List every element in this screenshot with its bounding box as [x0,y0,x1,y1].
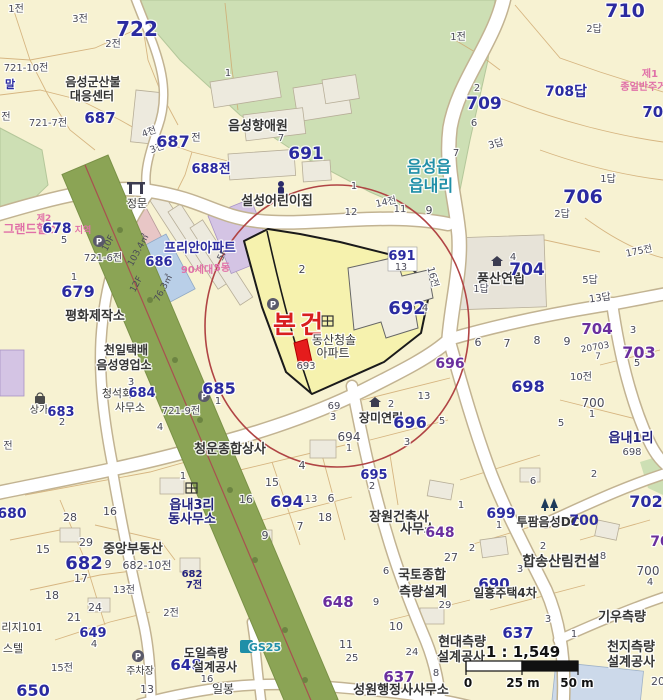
lbl-c3: 1 [180,471,186,482]
lbl-b64: 사무소 [115,401,145,414]
lbl-c10: 9 [105,558,112,571]
lbl-a41: 설성어린이집 [241,193,313,209]
lbl-b75: 13 [418,391,431,402]
lbl-c6: 16 [103,505,117,518]
svg-text:P: P [135,653,141,663]
lbl-b67: 2 [59,417,65,428]
lbl-b77: 694 [338,430,361,444]
lbl-a17: 1 [225,68,231,79]
lbl-a7: 음성군산불 [65,74,120,89]
lbl-a20: 691 [288,144,324,164]
lbl-c32: 13 [140,683,154,696]
lbl-b78: 1 [346,443,352,454]
lbl-c69: 일흥주택4차 [473,585,537,600]
lbl-c39: 13 [305,494,318,505]
lbl-b6: 5 [61,235,67,246]
lbl-a24: 708답 [545,83,587,100]
lbl-c26: 650 [16,681,49,700]
lbl-c42: 7 [297,520,304,533]
lbl-a39: 11 [394,204,407,215]
lbl-b57: 721-9전 [162,405,200,417]
child-icon [278,181,284,194]
lbl-c36: 15 [265,476,279,489]
lbl-a40: 9 [426,204,433,217]
lbl-c62: 국토종합 [398,567,446,583]
lbl-c78: 24 [406,647,419,658]
lbl-c81: 25 [346,653,359,664]
lbl-c49: 1 [458,500,464,511]
lbl-b76: 5 [439,416,445,427]
lbl-b63: 684 [128,386,155,401]
lbl-c33: 일봉 [212,682,234,696]
lbl-c40: 6 [328,492,335,505]
lbl-b16: 679 [61,282,94,301]
scale-tick-50m: 50 m [560,676,593,690]
lbl-c21: 리지101 [1,621,42,634]
cadastral-map-canvas[interactable]: P P P P 1전 3전 722 2전 721-10전 [0,0,663,700]
lbl-c41: 18 [318,511,332,524]
lbl-c9: 682 [65,553,103,574]
lbl-b65: 상가 [30,404,48,416]
lbl-c38: 694 [270,492,303,511]
lbl-b43: 704 [581,320,612,338]
lbl-c88: 천지측량 [607,639,655,655]
lbl-a34: 1답 [600,173,616,185]
lbl-a11: 전 [1,111,10,123]
lbl-b8: 90세대 [181,263,213,276]
lbl-c54: 2 [540,541,546,552]
lbl-b25: 동산청솔 [312,333,356,347]
lbl-c37: 16 [239,493,253,506]
lbl-c91: 20 [651,675,663,688]
lbl-c7: 15 [36,543,50,556]
lbl-c4: 680 [0,506,27,522]
lbl-c56: 700 [569,513,598,529]
lbl-b69: 청운종합상사 [194,441,266,457]
lbl-a28: 709 [466,94,502,114]
lbl-c8: 29 [79,536,93,549]
lbl-c77: 8 [433,668,439,679]
scale-tick-0: 0 [464,676,472,690]
lbl-c53: 2 [469,543,475,554]
lbl-b32: 704 [509,260,545,280]
lbl-a43: 12 [345,207,358,218]
lbl-c19: 7전 [186,578,202,591]
lbl-b81: 2 [369,481,375,492]
lbl-c75: 4 [647,577,653,588]
lbl-b71: 3 [330,412,336,423]
lbl-c60: 8 [600,551,606,562]
lbl-b47: 3 [630,325,636,336]
lbl-c25: 15전 [51,662,73,674]
lbl-c57: 702 [629,492,662,511]
lbl-b9: 5동 [214,262,230,274]
lbl-b60: 음성영업소 [96,357,151,372]
lbl-b41: 8 [534,334,541,347]
lbl-b79: 3 [404,437,410,448]
lbl-b54: 698 [622,447,641,458]
lbl-a16: 688전 [191,161,230,177]
lbl-a18: 음성향애원 [228,118,288,134]
lbl-c89: 설계공사 [607,654,655,670]
lbl-b19: 721-6전 [84,252,122,264]
lbl-a8: 대응센터 [70,88,114,103]
lbl-c15: 13전 [113,584,135,596]
lbl-b33: 1답 [473,283,489,295]
lbl-c73: 기우측량 [598,609,646,625]
lbl-b51: 1 [589,409,595,420]
lbl-c12: 682-10전 [122,559,171,572]
lbl-a33: 706 [563,186,603,208]
lbl-b24: 692 [388,298,426,319]
lbl-c11: 중앙부동산 [103,541,163,557]
lbl-b38: 696 [435,356,464,372]
lbl-b29: 4 [422,303,428,314]
lbl-a42: 1 [351,181,357,192]
lbl-a26: 종일반주거지 [620,80,663,93]
lbl-b59: 천일택배 [104,342,148,357]
lbl-a14: 687 [156,132,189,151]
lbl-a3: 722 [116,17,158,41]
scale-tick-25m: 25 m [506,676,539,690]
lbl-c14: 18 [45,589,59,602]
lbl-c24: 4 [91,639,97,650]
lbl-b53: 읍내1리 [609,430,654,446]
lbl-c30: 설계공사 [193,659,237,674]
lbl-c27: 주차장 [126,665,154,677]
lbl-b49: 10전 [570,371,592,383]
lbl-c80: 11 [339,638,353,651]
lbl-c18: 682 [182,569,203,580]
lbl-a35: 2답 [554,208,570,220]
lbl-b50: 700 [582,396,605,410]
lbl-a23: 2답 [586,23,602,35]
lbl-b22: 2 [299,263,306,276]
lbl-c61: 3 [517,564,523,575]
lbl-c64: 9 [373,597,379,608]
lbl-b42: 9 [564,335,571,348]
lbl-c52: 27 [444,551,458,564]
lbl-c59: 합송산림컨설 [522,553,599,570]
lbl-c1: 읍내3리 [170,497,215,513]
lbl-b40: 7 [504,337,511,350]
lbl-a19: 7 [278,133,284,144]
lbl-c70: 637 [502,624,533,642]
lbl-c82: 현대측량 [438,634,486,650]
lbl-a31: 7 [453,148,459,159]
lbl-b5: 678 [42,221,71,237]
lbl-c63: 측량설계 [399,584,447,600]
lbl-b73: 2 [388,399,394,410]
lbl-c22: 스텔 [3,642,23,655]
lbl-c71: 3 [545,614,551,625]
lbl-c58: 70 [650,534,663,550]
lbl-c2: 동사무소 [168,511,216,527]
lbl-a29: 2 [474,83,480,94]
lbl-c79: 10 [389,620,403,633]
lbl-c35: 4 [299,459,306,472]
lbl-b58: 4 [157,422,163,433]
lbl-c17: 21 [67,611,81,624]
lbl-a10: 721-7전 [29,117,67,129]
lbl-b37: 698 [511,377,544,396]
lbl-b26: 아파트 [316,346,349,360]
lbl-c48: 1 [496,520,502,531]
lbl-b21: 13 [395,262,407,273]
lbl-c72: 1 [571,629,577,640]
lbl-b1: 정문 [127,197,147,210]
lbl-b17: 1 [71,272,77,283]
lbl-c90: 성원행정사사무소 [353,682,449,698]
lbl-b18: 평화제작소 [65,308,125,324]
lbl-a30: 6 [471,118,477,129]
lbl-a2: 3전 [72,13,88,25]
lbl-c13: 17 [74,572,88,585]
lbl-c67: 648 [322,593,353,611]
lbl-c20: 2전 [163,607,179,619]
lbl-c66: 29 [439,600,452,611]
lbl-c5: 28 [63,511,77,524]
lbl-c34: GS25 [249,641,281,654]
lbl-b52: 5 [558,418,564,429]
lbl-b45: 7 [595,352,601,362]
lbl-c50: 2 [591,469,597,480]
map-viewport[interactable]: P P P P 1전 3전 722 2전 721-10전 [0,0,663,700]
lbl-a4: 2전 [105,38,121,50]
lbl-c46: 648 [425,525,454,541]
lbl-b74: 696 [393,413,426,432]
lbl-b34: 5답 [582,274,598,286]
lbl-a27: 707 [642,103,663,121]
scale-ratio-label: 1 : 1,549 [486,643,560,661]
lbl-a5: 721-10전 [4,62,49,74]
lbl-b39: 6 [475,336,482,349]
lbl-a21: 1전 [450,31,466,43]
lbl-b70: 69 [328,401,341,412]
svg-text:P: P [270,301,276,311]
lbl-b4: 지역 [75,224,92,236]
lbl-a22: 710 [605,0,645,22]
lbl-a1: 1전 [8,3,24,15]
lbl-c51: 6 [530,476,536,487]
lbl-c16: 24 [88,601,102,614]
lbl-c43: 9 [262,529,269,542]
lbl-c65: 6 [383,566,389,577]
lbl-b10: 686 [145,255,172,270]
lbl-c74: 700 [637,564,660,578]
lbl-b48: 5 [634,358,640,369]
lbl-b27: 693 [296,361,315,372]
lbl-a9: 687 [84,109,115,127]
lbl-a36: 음성읍 [407,157,451,176]
lbl-b68: 전 [3,440,12,452]
lbl-a15: 전 [191,132,200,144]
lbl-a25: 제1 [642,67,658,80]
lbl-b56: 1 [215,396,221,407]
lbl-a37: 읍내리 [409,176,453,195]
lbl-a6: 말 [5,78,15,91]
